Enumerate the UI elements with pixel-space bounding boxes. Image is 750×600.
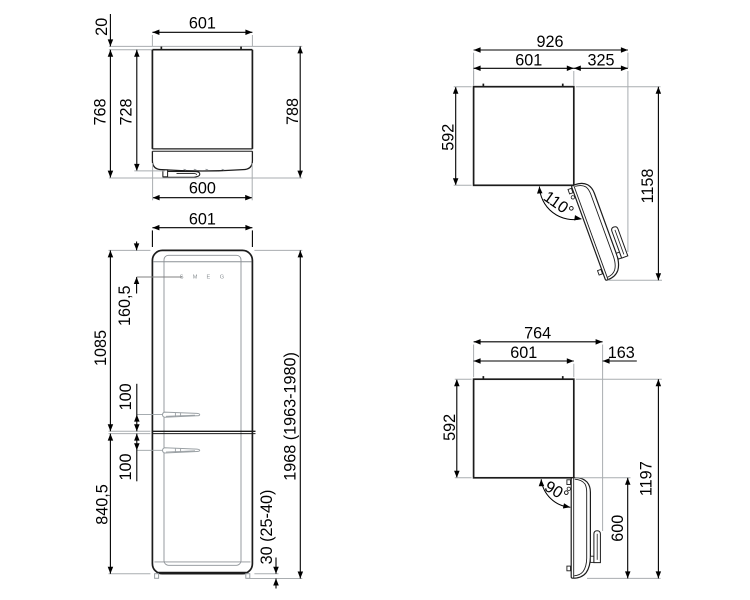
svg-text:840,5: 840,5: [94, 484, 112, 525]
svg-text:788: 788: [284, 98, 302, 125]
svg-text:1085: 1085: [92, 330, 110, 366]
svg-text:20: 20: [93, 18, 111, 36]
svg-text:100: 100: [117, 453, 135, 480]
svg-text:600: 600: [189, 180, 216, 198]
svg-text:926: 926: [536, 33, 563, 51]
svg-text:G: G: [220, 274, 224, 280]
svg-text:601: 601: [515, 51, 542, 69]
svg-text:768: 768: [91, 98, 109, 125]
svg-text:30 (25-40): 30 (25-40): [258, 490, 276, 565]
svg-text:325: 325: [587, 51, 614, 69]
svg-text:1158: 1158: [639, 169, 657, 204]
svg-text:601: 601: [189, 14, 216, 32]
svg-text:592: 592: [441, 414, 459, 441]
svg-text:601: 601: [189, 210, 216, 228]
svg-text:160,5: 160,5: [116, 286, 134, 327]
svg-text:600: 600: [609, 515, 627, 542]
svg-text:728: 728: [117, 98, 135, 125]
svg-text:764: 764: [524, 325, 551, 343]
svg-text:100: 100: [117, 383, 135, 410]
svg-text:M: M: [193, 274, 198, 280]
svg-text:601: 601: [510, 344, 537, 362]
svg-text:E: E: [207, 274, 211, 280]
svg-text:1968 (1963-1980): 1968 (1963-1980): [282, 352, 300, 481]
svg-text:1197: 1197: [637, 461, 655, 496]
svg-text:163: 163: [608, 344, 635, 362]
svg-text:592: 592: [440, 124, 458, 151]
